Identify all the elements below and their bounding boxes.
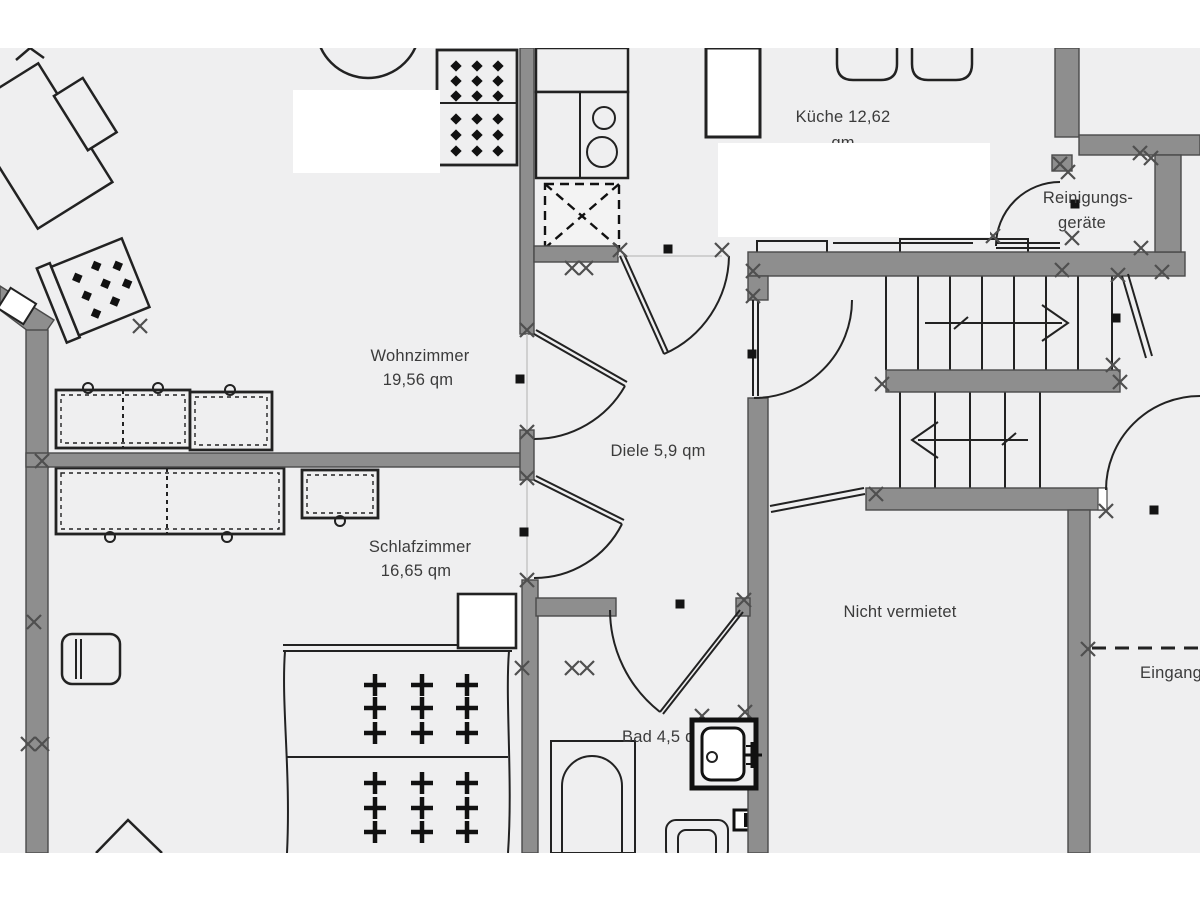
wall-hall-east-stub bbox=[748, 276, 768, 300]
small-armchair bbox=[62, 634, 120, 684]
tall-cabinet bbox=[706, 48, 760, 137]
wall-kitchen-east bbox=[1055, 48, 1079, 137]
label-reinigung-line2: geräte bbox=[1058, 214, 1106, 232]
label-diele: Diele 5,9 qm bbox=[610, 442, 705, 460]
wall-stairs-mid bbox=[886, 370, 1120, 392]
nightstand bbox=[458, 594, 516, 648]
floorplan-drawing: Küche 12,62 qm Reinigungs- geräte Wohnzi… bbox=[0, 0, 1200, 900]
wall-hall-north bbox=[534, 246, 618, 262]
whiteout-patch bbox=[293, 90, 440, 173]
wall-left bbox=[26, 330, 48, 853]
stove-counter bbox=[536, 48, 628, 178]
wall-living-bedroom bbox=[26, 453, 532, 467]
floorplan-page: Küche 12,62 qm Reinigungs- geräte Wohnzi… bbox=[0, 0, 1200, 900]
label-schlafzimmer-line2: 16,65 qm bbox=[381, 562, 451, 580]
wall-bath-west bbox=[522, 580, 538, 853]
label-wohnzimmer-line2: 19,56 qm bbox=[383, 371, 453, 389]
label-schlafzimmer-line1: Schlafzimmer bbox=[369, 538, 472, 556]
label-wohnzimmer-line1: Wohnzimmer bbox=[371, 347, 470, 365]
washbasin bbox=[692, 720, 762, 788]
wall-hall-west-upper bbox=[520, 48, 534, 334]
label-eingang: Eingang bbox=[1140, 664, 1200, 682]
wall-right-lower bbox=[1068, 510, 1090, 853]
whiteout-patch bbox=[718, 143, 990, 237]
wall-stairs-south bbox=[866, 488, 1106, 510]
label-nicht-vermietet: Nicht vermietet bbox=[843, 603, 956, 621]
label-kueche-line1: Küche 12,62 bbox=[796, 108, 891, 126]
wardrobe-row-living bbox=[56, 383, 272, 450]
wall-bath-north bbox=[536, 598, 616, 616]
label-reinigung-line1: Reinigungs- bbox=[1043, 189, 1133, 207]
wall-storage-east bbox=[1155, 155, 1181, 252]
sideboard-dotted bbox=[437, 50, 517, 165]
dashed-appliance bbox=[545, 184, 619, 248]
